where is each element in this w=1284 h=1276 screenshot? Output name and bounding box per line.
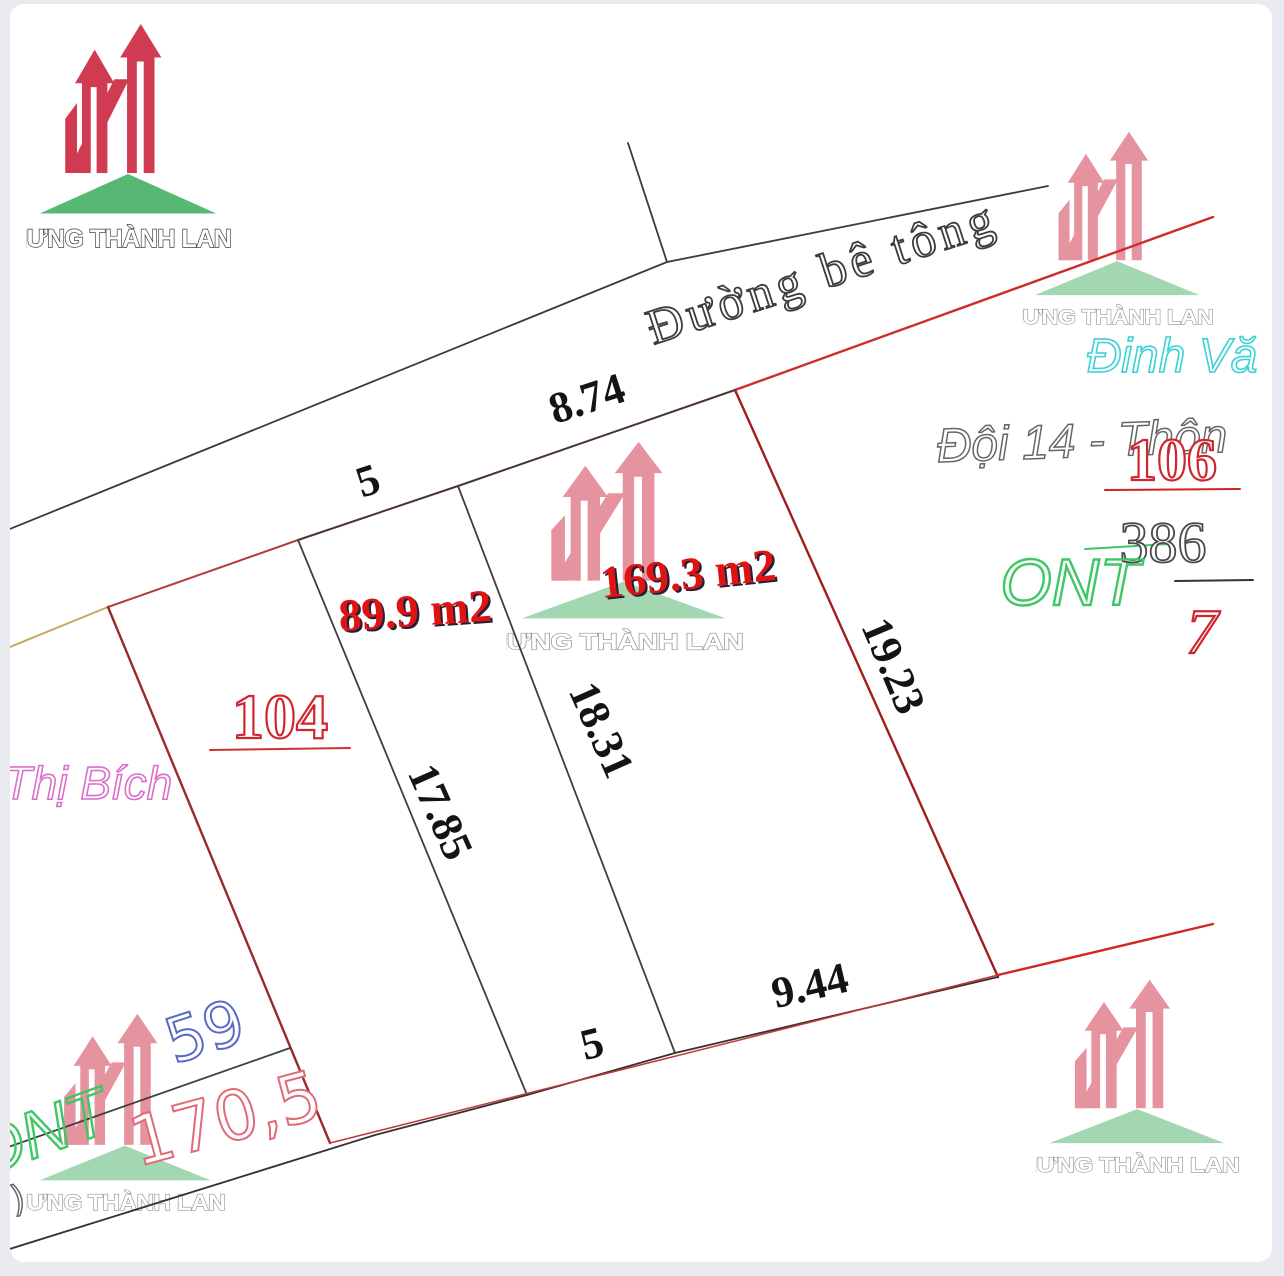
underline-386 [1175,580,1253,581]
map-world: HƯNG THÀNH LAND HƯNG THÀNH LAND HƯNG THÀ… [10,4,1272,1262]
logo-wordmark: HƯNG THÀNH LAND [26,224,232,253]
map-canvas: HƯNG THÀNH LAND HƯNG THÀNH LAND HƯNG THÀ… [10,4,1272,1262]
hung-thanh-logo-bottom-right: HƯNG THÀNH LAND [1036,978,1240,1178]
bottom-right-red-edge [998,924,1213,975]
logo-roof-triangle [1035,261,1200,295]
logo-building [65,24,161,173]
logo-building [1059,132,1149,261]
logo-building [1075,980,1170,1109]
owner-dinh-va: Đinh Vă [1087,333,1258,381]
cadastral-map-page: { "colors": { "logo_red": "#d13b52", "lo… [0,0,1284,1276]
hung-thanh-logo-graphic: HƯNG THÀNH LAND [1036,978,1240,1178]
logo-wordmark: HƯNG THÀNH LAND [1036,1152,1240,1177]
divider-19-23-red [735,390,998,977]
dim-bottom-5: 5 [576,1020,608,1068]
hung-thanh-logo-top-left: HƯNG THÀNH LAND [26,22,232,254]
bottom-edge-red-overlay [330,975,998,1143]
dim-9-44: 9.44 [768,956,853,1016]
hung-thanh-logo-top-right: HƯNG THÀNH LAND [1022,130,1214,330]
hung-thanh-logo-graphic: HƯNG THÀNH LAND [1022,130,1214,330]
dim-8-74: 8.74 [544,366,631,432]
parcel-106-number: 106 [1127,430,1217,490]
parcel-104-number: 104 [232,685,328,749]
dim-top-5: 5 [351,457,386,506]
logo-wordmark: HƯNG THÀNH LAND [1022,305,1214,329]
logo-roof-triangle [40,174,217,213]
dim-17-85: 17.85 [400,758,480,866]
road-name: Đường bê tông [640,192,1003,353]
area-89-9: 89.9 m2 [337,583,493,640]
logo-wordmark: HƯNG THÀNH LAND [26,1189,226,1215]
parcel-106-denominator: 7 [1186,600,1218,664]
road-top-stub [628,143,667,262]
hung-thanh-logo-graphic: HƯNG THÀNH LAND [26,22,232,254]
owner-thi-bich: Thị Bích [10,760,172,806]
road-lower-edge-red-left [108,540,298,607]
dim-18-31: 18.31 [561,676,641,784]
land-use-right: ONT [1000,549,1139,615]
dim-19-23: 19.23 [853,612,932,720]
road-lower-edge-tan [10,607,108,651]
parcel-59-number: 59 [158,990,252,1073]
logo-wordmark: HƯNG THÀNH LAND [506,628,744,655]
logo-roof-triangle [1050,1109,1225,1143]
